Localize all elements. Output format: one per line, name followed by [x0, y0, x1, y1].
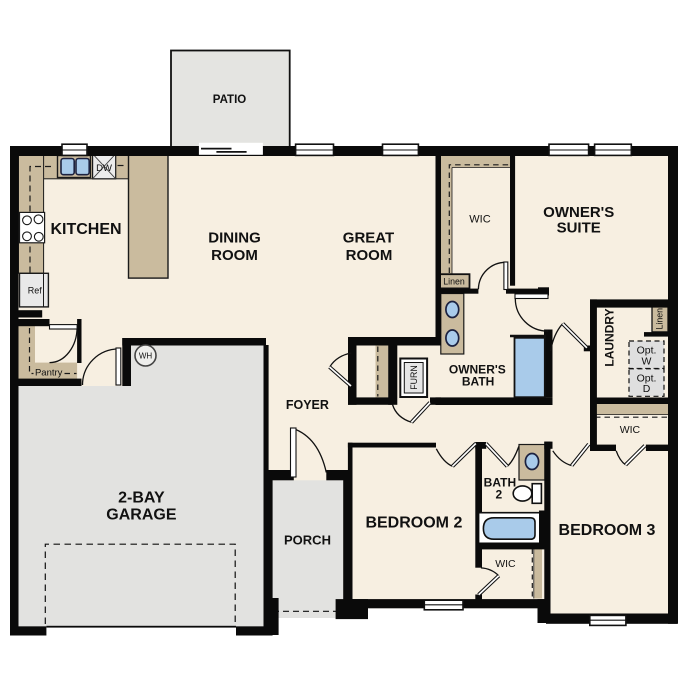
svg-text:BATH: BATH — [462, 374, 494, 388]
svg-text:SUITE: SUITE — [557, 220, 601, 237]
svg-text:Ref: Ref — [28, 286, 43, 296]
svg-text:Linen: Linen — [443, 277, 465, 287]
svg-text:PORCH: PORCH — [284, 532, 331, 547]
svg-text:GREAT: GREAT — [343, 230, 394, 247]
svg-text:LAUNDRY: LAUNDRY — [603, 308, 617, 366]
svg-text:GARAGE: GARAGE — [106, 507, 177, 524]
svg-text:ROOM: ROOM — [346, 247, 393, 264]
svg-text:Linen: Linen — [655, 308, 665, 330]
svg-text:KITCHEN: KITCHEN — [50, 221, 121, 238]
svg-text:ROOM: ROOM — [211, 247, 258, 264]
svg-text:WIC: WIC — [620, 424, 641, 436]
svg-text:PATIO: PATIO — [213, 94, 246, 106]
svg-text:WIC: WIC — [495, 558, 516, 570]
svg-text:DINING: DINING — [208, 230, 261, 247]
svg-text:2-BAY: 2-BAY — [118, 489, 165, 506]
svg-text:BEDROOM 2: BEDROOM 2 — [365, 514, 462, 531]
svg-text:FURN: FURN — [409, 365, 419, 389]
svg-text:2: 2 — [495, 487, 502, 501]
svg-text:OWNER'S: OWNER'S — [543, 204, 614, 221]
svg-text:Pantry: Pantry — [35, 368, 63, 379]
svg-text:WIC: WIC — [469, 214, 490, 226]
svg-text:BEDROOM 3: BEDROOM 3 — [559, 522, 656, 539]
svg-text:FOYER: FOYER — [286, 398, 329, 412]
svg-text:WH: WH — [139, 352, 153, 361]
svg-text:DW: DW — [96, 163, 112, 174]
svg-text:D: D — [643, 383, 651, 395]
svg-text:W: W — [642, 356, 652, 368]
